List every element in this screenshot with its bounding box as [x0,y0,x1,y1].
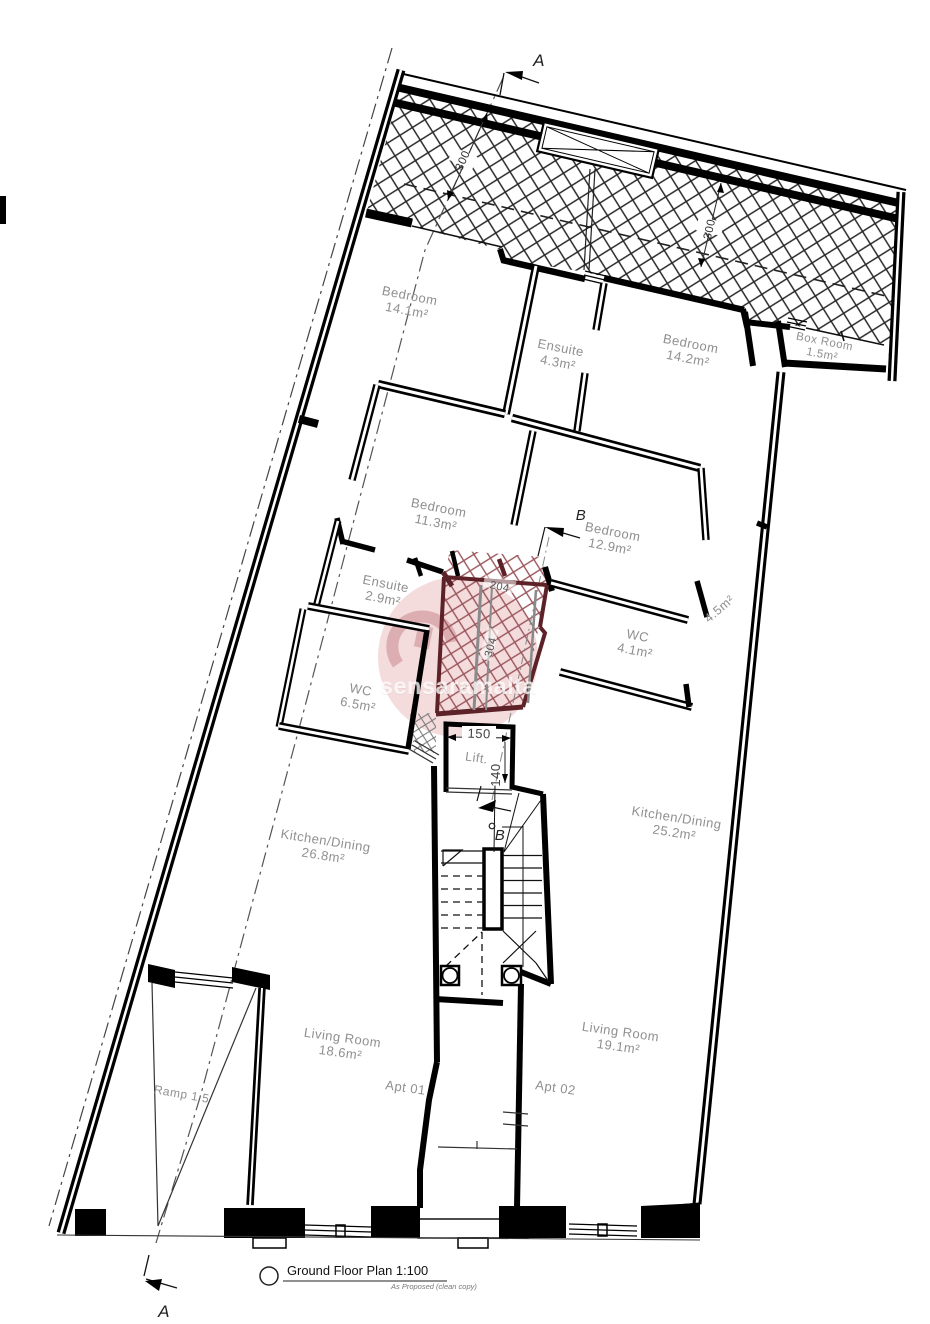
svg-text:140: 140 [488,763,503,786]
svg-text:B: B [495,827,506,844]
svg-text:sensaramalta: sensaramalta [380,673,537,699]
svg-text:A: A [157,1302,170,1319]
svg-text:150: 150 [467,726,491,742]
svg-text:As Proposed (clean copy): As Proposed (clean copy) [390,1282,477,1291]
svg-text:B: B [576,507,587,524]
svg-text:Ground Floor Plan 1:100: Ground Floor Plan 1:100 [287,1263,428,1278]
svg-text:A: A [532,51,545,70]
